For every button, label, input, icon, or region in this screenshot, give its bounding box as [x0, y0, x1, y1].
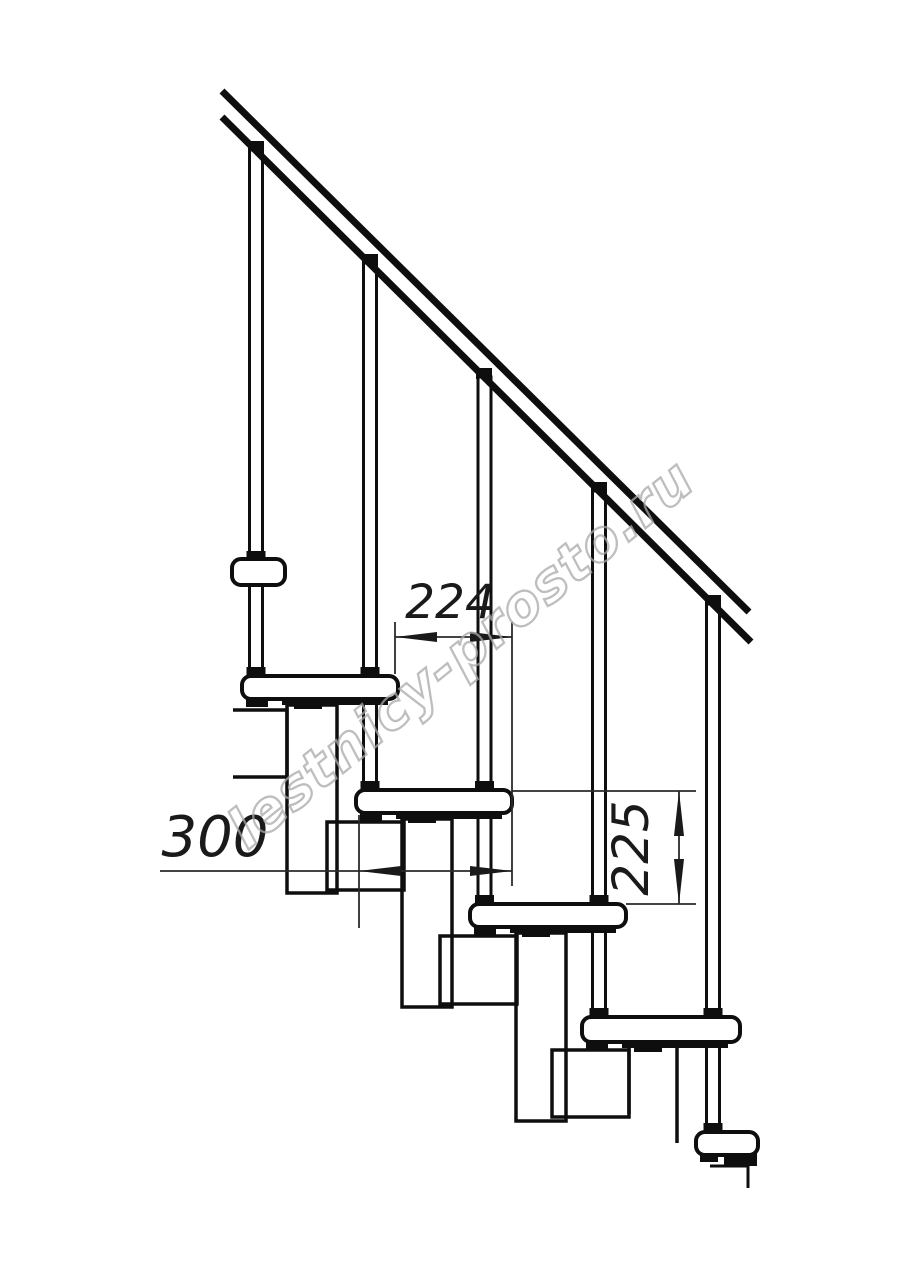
- collar-b5-tread-5: [704, 1123, 723, 1133]
- staircase-side-view-drawing: 224 300 225 lestnicy-prosto.ru: [0, 0, 914, 1280]
- collar-b3-tread-3: [475, 895, 494, 905]
- dim-300-arrow-left: [359, 866, 401, 876]
- dimension-riser-height: 225: [512, 791, 696, 904]
- under-tread-2-notch: [408, 817, 436, 823]
- baluster-1: [250, 150, 263, 681]
- under-tread-2-bump: [360, 811, 382, 821]
- module-box-4: [552, 1050, 629, 1117]
- module-column-2: [402, 819, 452, 1007]
- tread-2: [356, 790, 512, 813]
- collar-b2-tread-2: [361, 781, 380, 791]
- under-tread-1-bump: [246, 697, 268, 707]
- technical-drawing-page: 224 300 225 lestnicy-prosto.ru: [0, 0, 914, 1280]
- module-column-3: [516, 933, 566, 1121]
- baluster-5: [707, 604, 720, 1137]
- dim-225-arrow-up: [674, 791, 684, 836]
- collar-b5-tread-4: [704, 1008, 723, 1018]
- module-column-4-cut: [629, 1046, 677, 1143]
- collar-b3-tread-2: [475, 781, 494, 791]
- under-tread-4-notch: [634, 1046, 662, 1052]
- module-cut-lines-bottom: [710, 1166, 748, 1188]
- collar-b4-tread-4: [590, 1008, 609, 1018]
- collar-b2-tread-1: [361, 667, 380, 677]
- tread-4: [582, 1017, 740, 1042]
- under-tread-5-bump: [700, 1153, 718, 1162]
- collar-b1-tread-1: [247, 667, 266, 677]
- dim-225-arrow-down: [674, 859, 684, 904]
- tread-3: [470, 904, 626, 927]
- tread-top-partial: [232, 559, 285, 585]
- tread-5-partial: [696, 1132, 758, 1155]
- under-tread-3-notch: [522, 931, 550, 937]
- under-tread-4-bump: [586, 1040, 608, 1050]
- collar-b1-tread-top: [247, 551, 266, 561]
- under-tread-5-strip: [724, 1153, 757, 1166]
- dim-225-label: 225: [602, 800, 660, 895]
- under-tread-1-notch: [294, 703, 322, 709]
- under-tread-3-bump: [474, 925, 496, 935]
